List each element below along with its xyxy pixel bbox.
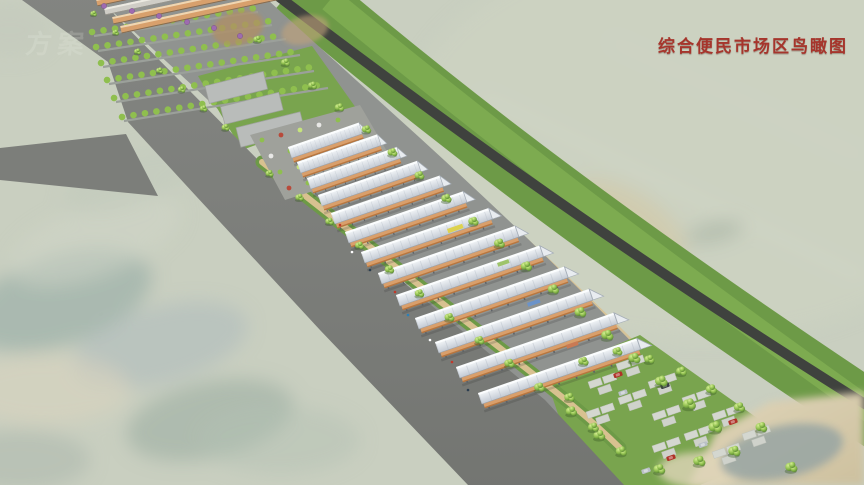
branch-road [0,134,158,196]
page-title: 综合便民市场区鸟瞰图 [658,32,848,57]
watermark: 方案 [24,24,92,61]
scene [0,0,864,485]
birdseye-rendering: 方案 综合便民市场区鸟瞰图 [0,0,864,485]
